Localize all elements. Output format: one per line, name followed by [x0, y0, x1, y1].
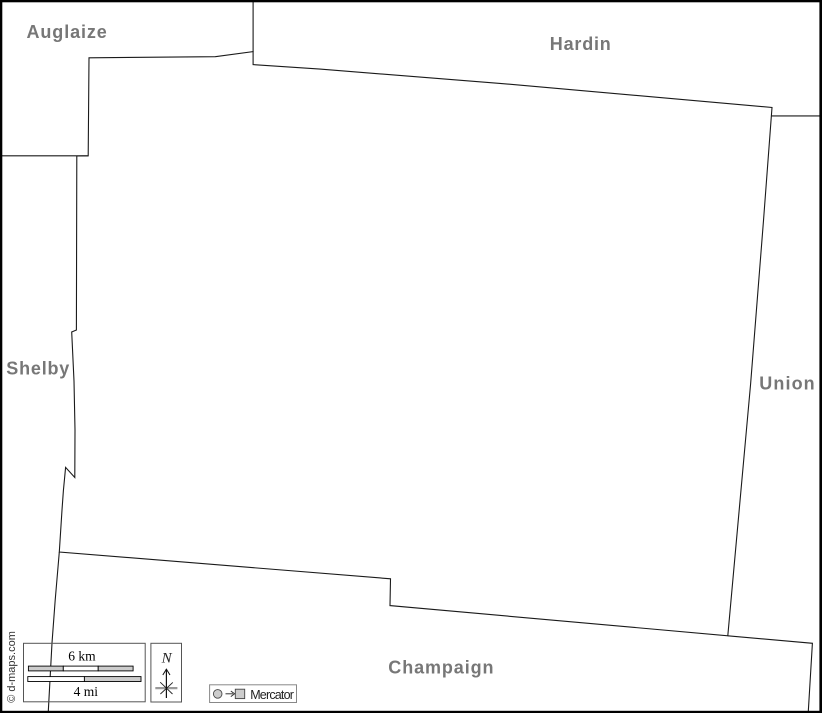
svg-text:N: N [161, 651, 173, 667]
svg-text:Hardin: Hardin [550, 34, 612, 54]
svg-text:Mercator: Mercator [250, 688, 294, 702]
svg-text:Shelby: Shelby [6, 359, 70, 379]
svg-text:4 mi: 4 mi [74, 684, 99, 699]
svg-text:Auglaize: Auglaize [27, 22, 108, 42]
svg-text:6 km: 6 km [68, 648, 96, 663]
svg-text:Champaign: Champaign [388, 658, 494, 678]
svg-text:Union: Union [759, 374, 816, 394]
svg-text:© d-maps.com: © d-maps.com [6, 631, 18, 703]
